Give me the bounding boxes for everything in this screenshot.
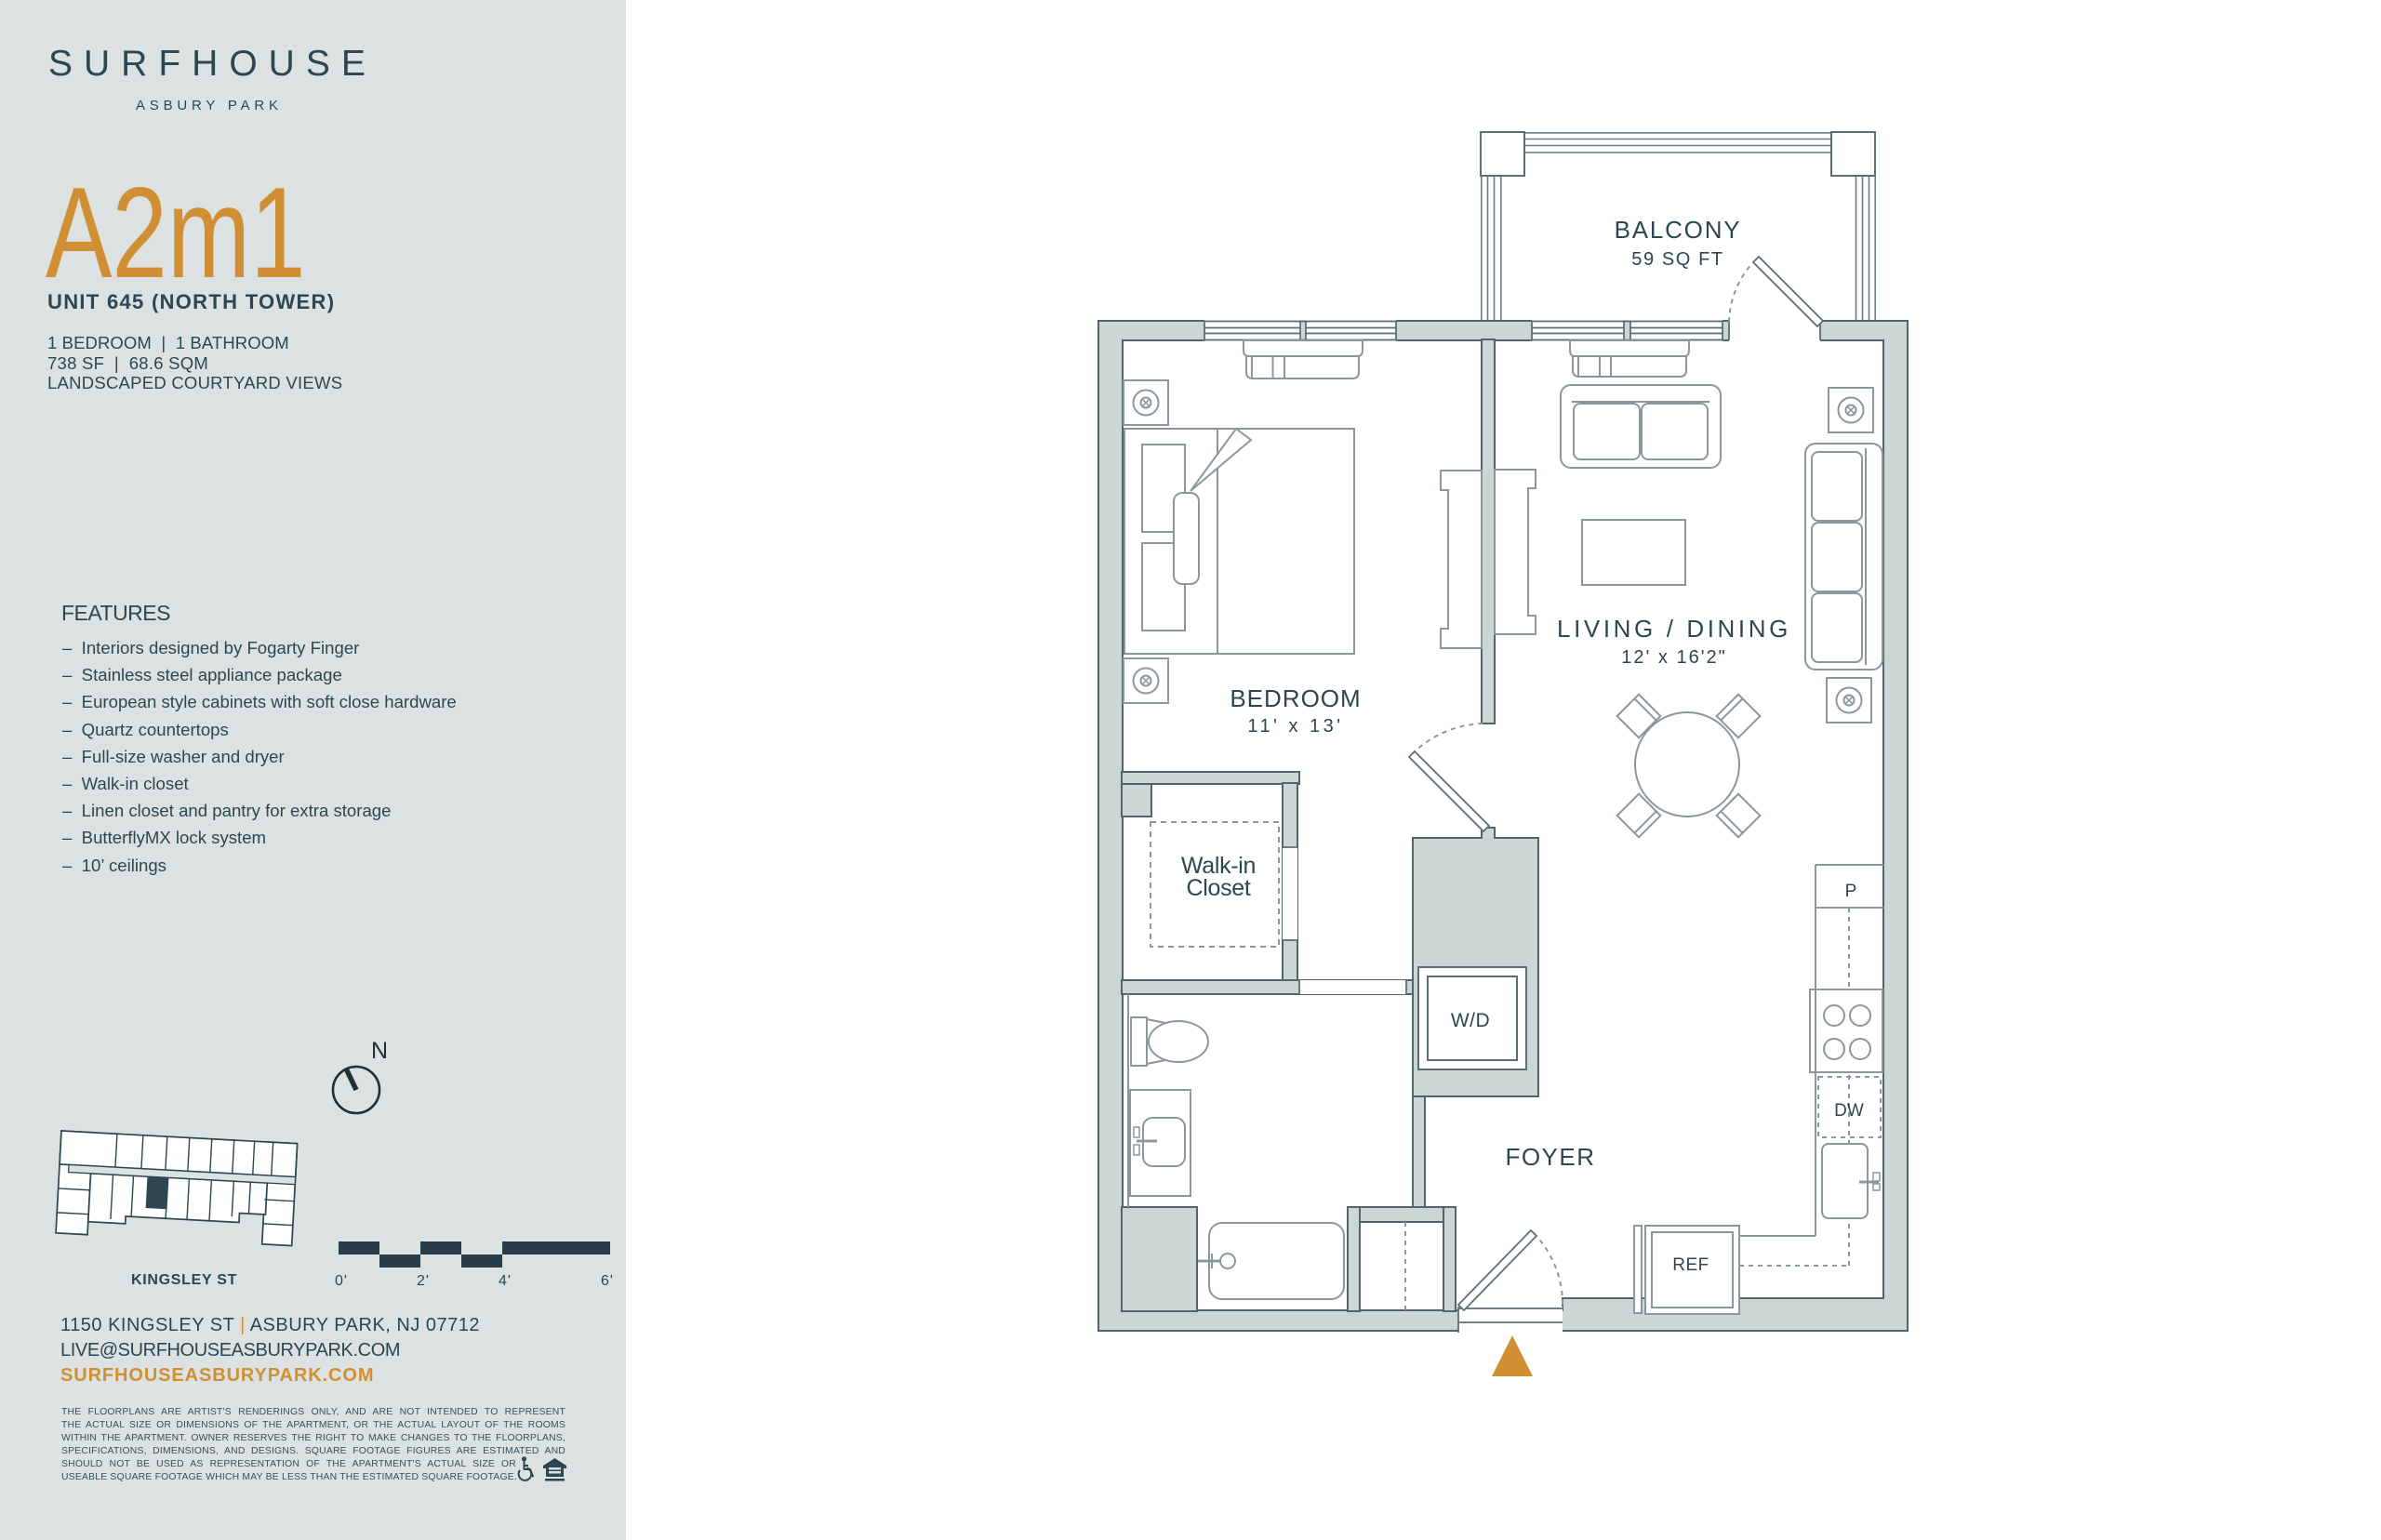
- svg-text:REF: REF: [1672, 1255, 1709, 1275]
- svg-text:W/D: W/D: [1451, 1010, 1490, 1031]
- svg-text:12' x 16'2": 12' x 16'2": [1621, 647, 1726, 668]
- svg-text:BEDROOM: BEDROOM: [1230, 684, 1361, 712]
- svg-text:FOYER: FOYER: [1505, 1143, 1595, 1171]
- svg-text:Closet: Closet: [1186, 875, 1250, 901]
- svg-text:LIVING / DINING: LIVING / DINING: [1557, 615, 1791, 643]
- svg-text:DW: DW: [1834, 1101, 1864, 1121]
- svg-text:59 SQ FT: 59 SQ FT: [1631, 249, 1724, 270]
- svg-text:BALCONY: BALCONY: [1615, 216, 1742, 244]
- svg-text:11' x 13': 11' x 13': [1247, 716, 1343, 737]
- svg-text:P: P: [1845, 882, 1857, 901]
